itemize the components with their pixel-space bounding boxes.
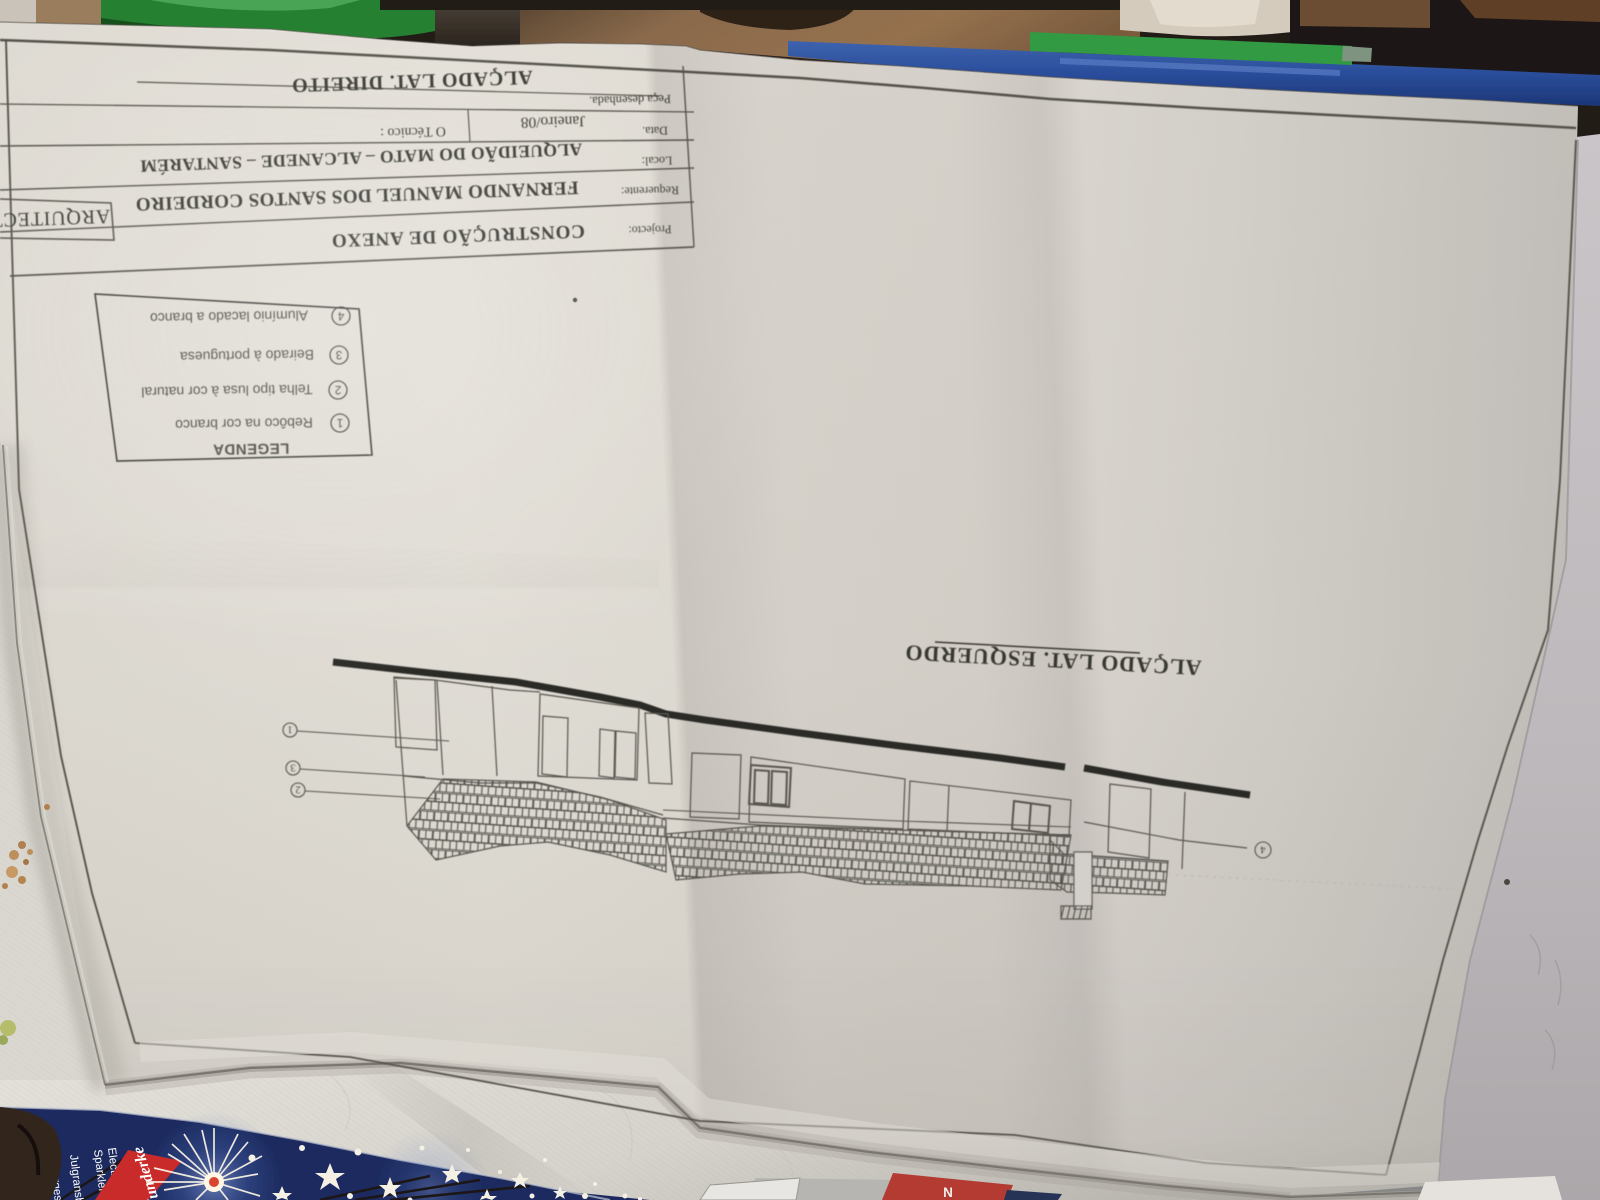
svg-text:N: N <box>943 1185 953 1200</box>
